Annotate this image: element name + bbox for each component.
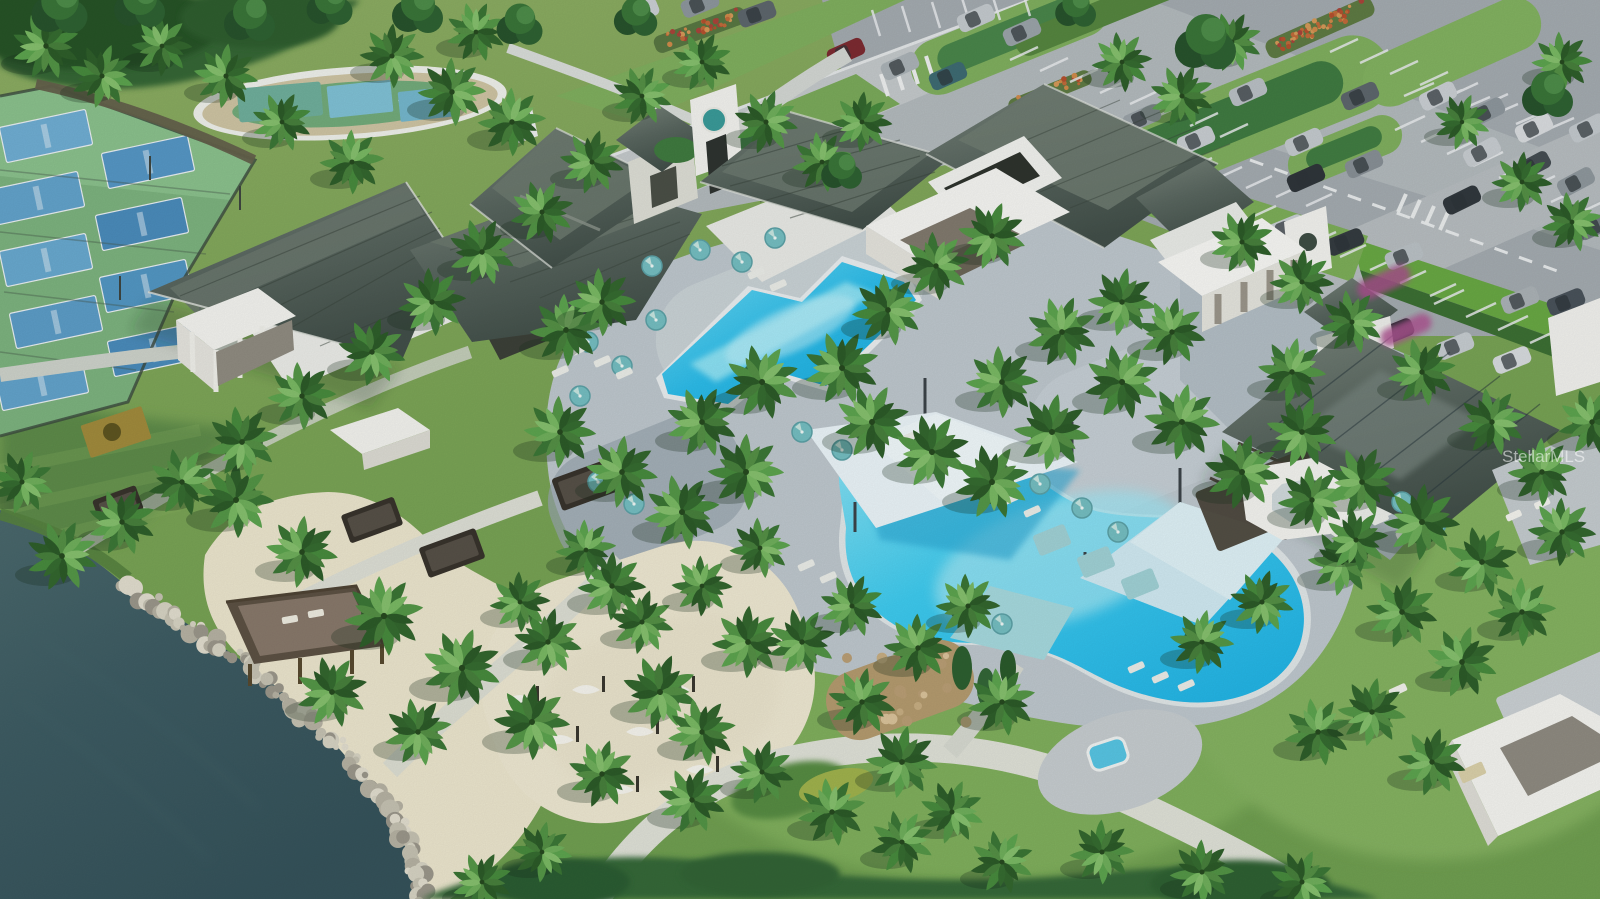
svg-text:StellarMLS: StellarMLS [1502, 447, 1585, 466]
